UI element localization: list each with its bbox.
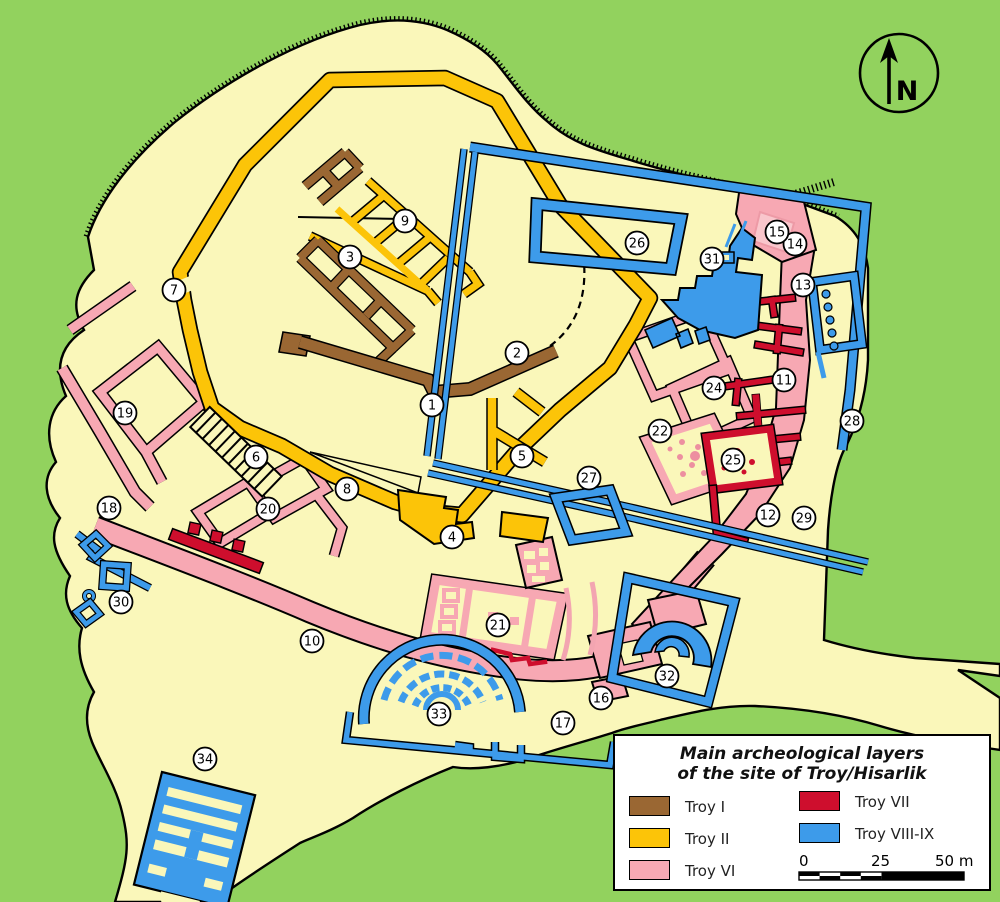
svg-text:28: 28: [844, 415, 861, 430]
marker-19: 19: [114, 402, 137, 425]
scale-tick-50: 50 m: [935, 852, 973, 870]
legend-label-troy2: Troy II: [685, 830, 729, 848]
svg-text:29: 29: [796, 512, 813, 527]
scale-bar-segments: [799, 872, 964, 880]
svg-text:33: 33: [431, 708, 448, 723]
scale-tick-25: 25: [871, 852, 890, 870]
svg-text:7: 7: [170, 284, 178, 299]
legend-label-troy89: Troy VIII-IX: [855, 825, 934, 843]
svg-text:2: 2: [513, 347, 521, 362]
svg-text:34: 34: [197, 753, 214, 768]
svg-text:19: 19: [117, 407, 134, 422]
svg-text:8: 8: [343, 483, 351, 498]
scale-tick-0: 0: [799, 852, 809, 870]
legend-title: Main archeological layers of the site of…: [615, 744, 989, 784]
marker-10: 10: [301, 630, 324, 653]
marker-29: 29: [793, 507, 816, 530]
troy-site-map: 1234567891011121314151617181920212224252…: [0, 0, 1000, 902]
marker-6: 6: [245, 446, 268, 469]
marker-2: 2: [506, 342, 529, 365]
marker-26: 26: [626, 232, 649, 255]
svg-text:25: 25: [725, 454, 742, 469]
svg-text:22: 22: [652, 425, 669, 440]
svg-text:13: 13: [795, 279, 812, 294]
marker-28: 28: [841, 410, 864, 433]
svg-text:14: 14: [787, 238, 804, 253]
marker-7: 7: [163, 279, 186, 302]
swatch-troy2: [629, 828, 670, 848]
svg-text:1: 1: [428, 399, 436, 414]
svg-text:24: 24: [706, 382, 723, 397]
swatch-troy6: [629, 860, 670, 880]
svg-text:32: 32: [659, 670, 676, 685]
marker-27: 27: [578, 467, 601, 490]
marker-9: 9: [394, 210, 417, 233]
svg-text:18: 18: [101, 502, 118, 517]
marker-1: 1: [421, 394, 444, 417]
marker-31: 31: [701, 248, 724, 271]
legend-label-troy1: Troy I: [685, 798, 725, 816]
legend-label-troy6: Troy VI: [685, 862, 735, 880]
svg-text:31: 31: [704, 253, 721, 268]
marker-16: 16: [590, 687, 613, 710]
marker-5: 5: [511, 445, 534, 468]
svg-text:11: 11: [776, 374, 793, 389]
marker-30: 30: [110, 591, 133, 614]
marker-17: 17: [552, 712, 575, 735]
marker-22: 22: [649, 420, 672, 443]
svg-text:4: 4: [448, 531, 456, 546]
marker-32: 32: [656, 665, 679, 688]
svg-text:20: 20: [260, 503, 277, 518]
marker-18: 18: [98, 497, 121, 520]
swatch-troy1: [629, 796, 670, 816]
marker-20: 20: [257, 498, 280, 521]
marker-21: 21: [487, 614, 510, 637]
svg-text:17: 17: [555, 717, 572, 732]
marker-25: 25: [722, 449, 745, 472]
marker-11: 11: [773, 369, 796, 392]
marker-12: 12: [757, 504, 780, 527]
marker-34: 34: [194, 748, 217, 771]
marker-8: 8: [336, 478, 359, 501]
svg-text:21: 21: [490, 619, 507, 634]
svg-text:27: 27: [581, 472, 598, 487]
scale-bar: 0 25 50 m: [785, 848, 990, 890]
marker-33: 33: [428, 703, 451, 726]
svg-text:9: 9: [401, 215, 409, 230]
swatch-troy7: [799, 791, 840, 811]
svg-text:10: 10: [304, 635, 321, 650]
svg-text:5: 5: [518, 450, 526, 465]
legend-label-troy7: Troy VII: [855, 793, 910, 811]
legend-box: Main archeological layers of the site of…: [613, 734, 991, 891]
svg-text:6: 6: [252, 451, 260, 466]
marker-4: 4: [441, 526, 464, 549]
svg-text:26: 26: [629, 237, 646, 252]
swatch-troy89: [799, 823, 840, 843]
svg-text:30: 30: [113, 596, 130, 611]
svg-text:3: 3: [346, 251, 354, 266]
svg-text:16: 16: [593, 692, 610, 707]
svg-text:12: 12: [760, 509, 777, 524]
svg-text:15: 15: [769, 226, 786, 241]
marker-15: 15: [766, 221, 789, 244]
marker-3: 3: [339, 246, 362, 269]
marker-24: 24: [703, 377, 726, 400]
compass-label: N: [896, 76, 919, 107]
marker-13: 13: [792, 274, 815, 297]
